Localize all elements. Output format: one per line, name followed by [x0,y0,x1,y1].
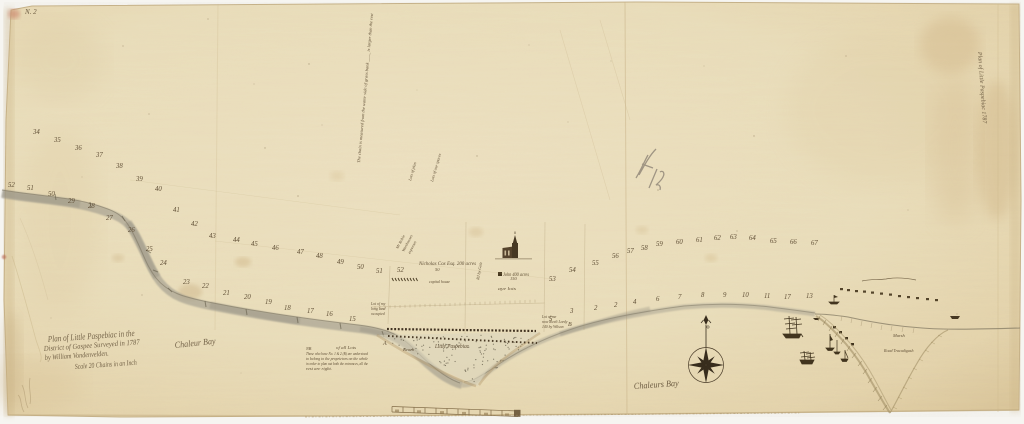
svg-text:rest are right.: rest are right. [306,366,332,371]
svg-text:28: 28 [88,203,95,210]
svg-text:150: 150 [510,276,518,281]
svg-text:66: 66 [790,239,797,246]
svg-text:48: 48 [316,253,323,260]
svg-text:58: 58 [641,245,648,252]
svg-text:13: 13 [806,293,813,300]
svg-text:Lot of my: Lot of my [370,302,386,306]
svg-text:6: 6 [656,296,660,303]
svg-text:8: 8 [701,292,705,299]
svg-text:46: 46 [272,245,279,252]
svg-text:29: 29 [68,198,75,205]
svg-text:56: 56 [612,253,619,260]
svg-text:36: 36 [74,145,82,152]
svg-text:60: 60 [676,239,683,246]
svg-text:43: 43 [209,233,216,240]
svg-text:long land: long land [371,307,386,311]
svg-text:capital house: capital house [429,279,450,284]
svg-text:21: 21 [223,290,230,297]
svg-text:20: 20 [244,294,251,301]
svg-text:Beach: Beach [403,347,415,352]
svg-text:occupied: occupied [371,312,385,316]
svg-text:39: 39 [135,176,143,183]
svg-text:55: 55 [592,260,599,267]
svg-text:aye lots: aye lots [498,286,516,291]
svg-text:59: 59 [656,241,663,248]
svg-text:34: 34 [32,129,40,136]
svg-text:7: 7 [678,294,682,301]
svg-text:2: 2 [594,305,598,312]
svg-text:50: 50 [357,264,364,271]
svg-text:3: 3 [569,308,574,315]
svg-text:A: A [382,341,387,347]
svg-text:22: 22 [202,283,209,290]
svg-text:38: 38 [115,163,123,170]
svg-text:64: 64 [749,235,756,242]
svg-text:57: 57 [627,248,634,255]
svg-text:24: 24 [160,260,167,267]
svg-text:N. 2: N. 2 [24,8,37,16]
svg-text:16: 16 [326,311,333,318]
svg-text:19: 19 [265,299,272,306]
svg-text:65: 65 [770,238,777,245]
svg-text:41: 41 [173,207,180,214]
svg-text:11: 11 [764,293,770,300]
svg-text:Little Paspebiac: Little Paspebiac [434,344,469,350]
svg-text:67: 67 [811,240,818,247]
svg-text:50: 50 [435,267,440,272]
svg-text:Marsh: Marsh [892,333,906,338]
svg-text:53: 53 [549,276,556,283]
svg-text:61: 61 [696,237,703,244]
svg-text:Lot of me: Lot of me [541,315,557,319]
svg-text:17: 17 [307,308,314,315]
svg-text:Road Tracadigash: Road Tracadigash [883,348,913,353]
svg-text:37: 37 [95,152,103,159]
svg-text:15: 15 [349,316,356,323]
svg-text:52: 52 [397,267,404,274]
svg-text:63: 63 [730,234,737,241]
svg-text:of all Lots: of all Lots [336,345,356,350]
svg-text:25: 25 [146,246,153,253]
svg-text:18: 18 [284,305,291,312]
svg-text:49: 49 [337,259,344,266]
svg-text:140 by Wilson: 140 by Wilson [542,325,564,329]
svg-text:9: 9 [723,292,727,299]
svg-text:4: 4 [633,299,637,306]
svg-text:54: 54 [569,267,576,274]
svg-text:47: 47 [297,249,304,256]
svg-text:2: 2 [614,302,618,309]
svg-text:B: B [568,322,572,328]
svg-text:51: 51 [27,185,34,192]
svg-text:now dwelt Lordy: now dwelt Lordy [542,320,568,324]
svg-text:10: 10 [742,292,749,299]
svg-text:Nicholas Cox Esq. 200 acres: Nicholas Cox Esq. 200 acres [418,261,476,267]
svg-text:62: 62 [714,235,721,242]
svg-text:27: 27 [106,215,113,222]
svg-text:52: 52 [8,182,15,189]
svg-text:45: 45 [251,241,258,248]
svg-text:40: 40 [155,186,162,193]
svg-text:51: 51 [376,268,383,275]
svg-text:23: 23 [183,279,190,286]
svg-text:35: 35 [53,137,61,144]
svg-text:50: 50 [48,191,55,198]
svg-text:42: 42 [191,221,198,228]
svg-text:17: 17 [784,294,791,301]
svg-text:26: 26 [128,227,135,234]
